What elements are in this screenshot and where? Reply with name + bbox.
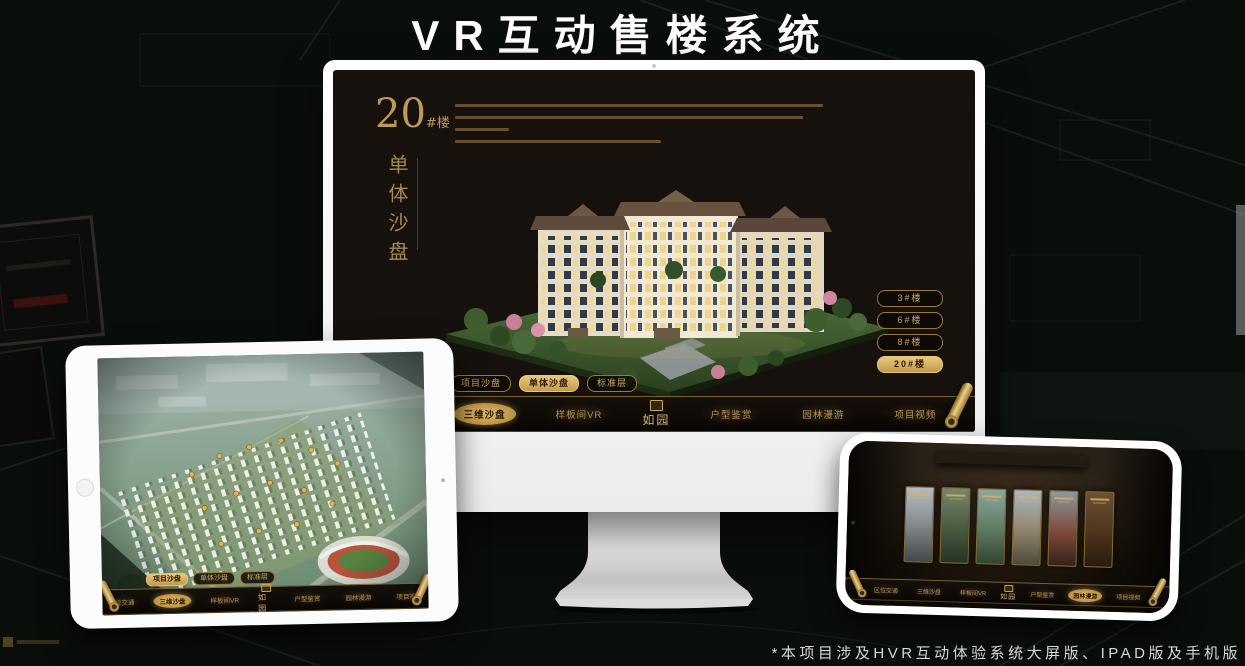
building-3d-render[interactable]: [418, 152, 908, 402]
menu-item-garden-tour[interactable]: 园林漫游: [339, 590, 377, 605]
page-title: VR互动售楼系统: [0, 2, 1245, 63]
floor-button-6[interactable]: 6#楼: [877, 312, 943, 329]
floor-button-3[interactable]: 3#楼: [877, 290, 943, 307]
phone-device: 区位交通 三维沙盘 样板间VR 如园 户型鉴赏 园林漫游 项目视频: [836, 432, 1183, 621]
menu-item-floorplans[interactable]: 户型鉴赏: [1025, 587, 1059, 601]
tablet-subtab-project-sandbox[interactable]: 项目沙盘: [146, 573, 188, 587]
menu-item-showroom-vr[interactable]: 样板间VR: [955, 585, 992, 599]
floor-button-20[interactable]: 20#楼: [877, 356, 943, 373]
page: VR互动售楼系统 20#楼 单体沙盘: [0, 0, 1245, 666]
scene-gallery: [903, 486, 1114, 568]
intro-text-lines: [455, 104, 835, 152]
subtab-project-sandbox[interactable]: 项目沙盘: [451, 375, 511, 392]
tablet-home-button[interactable]: [76, 478, 94, 496]
menu-item-showroom-vr[interactable]: 样板间VR: [546, 403, 613, 425]
menu-item-floorplans[interactable]: 户型鉴赏: [700, 403, 762, 425]
menu-item-project-video[interactable]: 项目视频: [1111, 589, 1145, 603]
menu-item-location[interactable]: 区位交通: [869, 583, 903, 597]
photo-edge-sliver: [1236, 205, 1245, 335]
phone-app-screen: 区位交通 三维沙盘 样板间VR 如园 户型鉴赏 园林漫游 项目视频: [845, 441, 1173, 614]
menu-item-3d-sandbox[interactable]: 三维沙盘: [912, 584, 946, 598]
building-subtitle: 单体沙盘: [383, 154, 412, 270]
tablet-menubar: 区位交通 三维沙盘 样板间VR 如园 户型鉴赏 园林漫游 项目视频: [102, 583, 428, 616]
gallery-card-5[interactable]: [1047, 490, 1078, 567]
subtab-standard-floor[interactable]: 标准层: [587, 375, 637, 392]
seal-icon: [650, 400, 663, 411]
subtab-single-sandbox[interactable]: 单体沙盘: [519, 375, 579, 392]
phone-camera-dot: [851, 521, 855, 525]
brand-logo[interactable]: 如园: [258, 584, 276, 614]
menu-item-garden-tour[interactable]: 园林漫游: [792, 403, 854, 425]
gallery-card-1[interactable]: [903, 486, 934, 563]
monitor-camera-dot: [652, 64, 656, 68]
tablet-camera-dot: [441, 478, 445, 482]
tablet-app-screen: 项目沙盘 单体沙盘 标准层 区位交通 三维沙盘 样板间VR 如园 户型鉴赏 园林…: [97, 352, 428, 616]
menu-item-floorplans[interactable]: 户型鉴赏: [288, 591, 326, 606]
monitor-stand: [534, 510, 774, 614]
gallery-card-4[interactable]: [1011, 489, 1042, 566]
tablet-subtab-single-sandbox[interactable]: 单体沙盘: [193, 572, 235, 586]
brand-logo[interactable]: 如园: [642, 400, 670, 428]
floor-button-group: 3#楼 6#楼 8#楼 20#楼: [877, 290, 943, 373]
building-number: 20#楼: [375, 94, 450, 134]
gallery-card-3[interactable]: [975, 488, 1006, 565]
gallery-card-6[interactable]: [1083, 491, 1114, 568]
menu-item-3d-sandbox[interactable]: 三维沙盘: [454, 403, 516, 425]
menu-item-showroom-vr[interactable]: 样板间VR: [204, 592, 245, 607]
gallery-card-2[interactable]: [939, 487, 970, 564]
brand-logo[interactable]: 如园: [1000, 584, 1016, 601]
floor-button-8[interactable]: 8#楼: [877, 334, 943, 351]
menu-item-3d-sandbox[interactable]: 三维沙盘: [153, 594, 191, 609]
footnote: *本项目涉及HVR互动体验系统大屏版、IPAD版及手机版: [772, 642, 1241, 663]
menu-item-project-video[interactable]: 项目视频: [884, 403, 946, 425]
plaque-photo: [0, 217, 103, 346]
scroll-handle-icon[interactable]: [944, 381, 974, 427]
sandbox-subtabs: 项目沙盘 单体沙盘 标准层: [451, 375, 637, 392]
seal-icon: [261, 584, 271, 592]
menu-item-garden-tour[interactable]: 园林漫游: [1068, 588, 1102, 602]
tablet-subtab-standard-floor[interactable]: 标准层: [240, 571, 275, 585]
tablet-device: 项目沙盘 单体沙盘 标准层 区位交通 三维沙盘 样板间VR 如园 户型鉴赏 园林…: [65, 338, 459, 629]
